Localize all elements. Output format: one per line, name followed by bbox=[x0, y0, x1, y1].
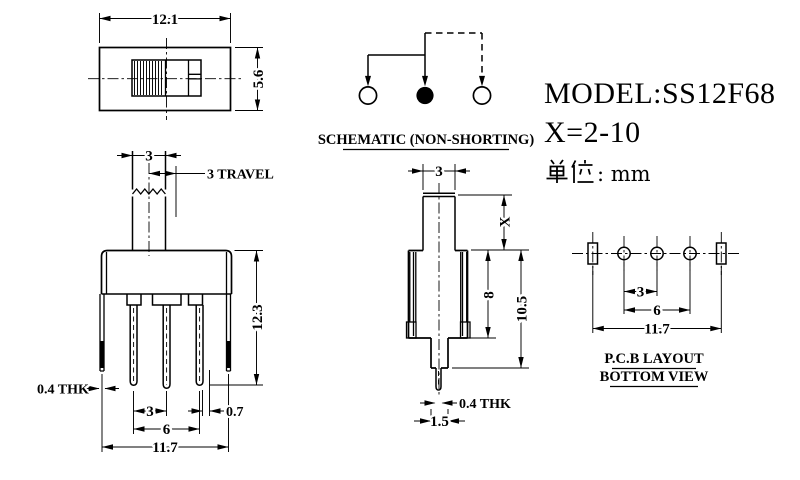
pcb-caption-line1: P.C.B LAYOUT bbox=[604, 351, 704, 367]
side-body-inner-walls bbox=[414, 252, 463, 336]
dim-lines-x bbox=[458, 195, 529, 250]
front-left-tab-fill bbox=[100, 341, 103, 368]
dim-label-body-height: 8 bbox=[482, 291, 498, 299]
front-view: 3 3 TRAVEL 12.3 0.4 THK 3 6 11.7 0.7 bbox=[37, 149, 274, 457]
unit-suffix-text: : mm bbox=[597, 162, 651, 186]
x-range-text: X=2-10 bbox=[544, 116, 641, 149]
top-view: 12.1 5.6 bbox=[88, 12, 267, 120]
dim-label-overall-height: 10.5 bbox=[515, 296, 531, 322]
dim-label-side-pin-width: 1.5 bbox=[430, 414, 449, 430]
pcb-caption-line2: BOTTOM VIEW bbox=[600, 369, 709, 385]
dim-label-front-knob-width: 3 bbox=[145, 149, 153, 165]
dim-label-side-pin-thk: 0.4 THK bbox=[459, 397, 511, 412]
dim-label-side-knob-width: 3 bbox=[435, 164, 443, 180]
front-pin-dashes bbox=[134, 308, 200, 385]
schematic-dashed-path bbox=[425, 33, 482, 76]
side-tab-lines bbox=[410, 252, 467, 322]
dim-label-pcb-slot-span: 11.7 bbox=[644, 322, 670, 338]
info-block: MODEL:SS12F68 X=2-10 : mm bbox=[544, 77, 776, 186]
unit-label-chinese-glyphs bbox=[547, 160, 594, 183]
schematic-caption: SCHEMATIC (NON-SHORTING) bbox=[318, 132, 535, 148]
front-body-inner-walls bbox=[107, 252, 227, 294]
dim-label-front-edge-offset: 0.7 bbox=[226, 405, 244, 420]
dim-label-pcb-pitch: 3 bbox=[637, 285, 645, 301]
schematic-contact-right bbox=[473, 87, 490, 104]
schematic: SCHEMATIC (NON-SHORTING) bbox=[318, 33, 535, 150]
schematic-solid-path bbox=[368, 33, 425, 77]
schematic-contact-common bbox=[416, 87, 433, 104]
front-pin-pedestals bbox=[127, 294, 203, 305]
side-body-outline bbox=[409, 251, 468, 369]
dim-label-front-bottom-span: 11.7 bbox=[152, 440, 178, 456]
front-right-tab-fill bbox=[227, 341, 230, 368]
top-view-knob-detail bbox=[166, 60, 202, 96]
dim-label-top-height: 5.6 bbox=[251, 69, 267, 88]
pcb-layout: 3 6 11.7 P.C.B LAYOUT BOTTOM VIEW bbox=[572, 232, 742, 387]
front-body-outline bbox=[102, 251, 232, 295]
dim-label-front-height: 12.3 bbox=[250, 304, 266, 330]
dim-label-front-tab-thk: 0.4 THK bbox=[37, 383, 89, 398]
drawing-sheet: 12.1 5.6 3 3 TRAVEL bbox=[0, 0, 800, 480]
schematic-arrows bbox=[365, 76, 485, 87]
dim-label-knob-height-x: X bbox=[498, 216, 514, 227]
dim-label-pcb-span: 6 bbox=[653, 303, 661, 319]
dim-label-front-pitch: 3 bbox=[146, 404, 154, 420]
dim-label-top-width: 12.1 bbox=[152, 12, 178, 28]
dim-arrows-thk-side bbox=[425, 400, 453, 405]
top-view-knob-hatch bbox=[135, 61, 162, 95]
model-text: MODEL:SS12F68 bbox=[544, 77, 776, 110]
dim-arrows-0-7 bbox=[192, 408, 221, 413]
technical-drawing: 12.1 5.6 3 3 TRAVEL bbox=[0, 0, 800, 480]
side-view: 3 X 8 10.5 0.4 THK 1.5 bbox=[407, 164, 531, 430]
dim-label-front-span: 6 bbox=[163, 422, 171, 438]
schematic-contact-left bbox=[359, 87, 376, 104]
dim-label-travel: 3 TRAVEL bbox=[207, 168, 274, 183]
